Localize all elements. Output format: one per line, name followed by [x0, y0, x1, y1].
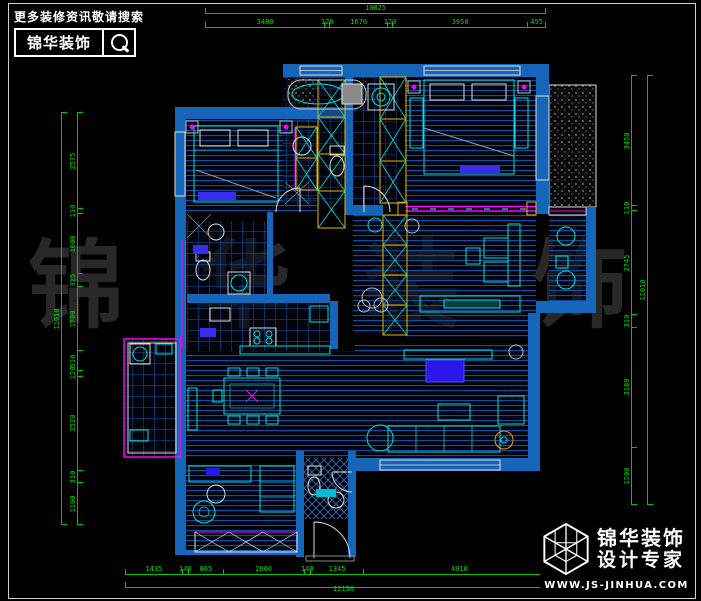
dim-segment: 3950: [392, 22, 527, 28]
dim-left-segments: 25751101600325170051012025203101100: [77, 112, 83, 525]
dim-tick: [545, 8, 546, 14]
dim-left-total: 11010: [61, 112, 67, 525]
dim-tick: [545, 22, 546, 28]
floorplan-drawing: [0, 0, 701, 601]
dim-segment: 325: [77, 273, 83, 286]
dim-segment: 1700: [77, 286, 83, 350]
dim-tick: [61, 524, 67, 525]
dim-segment: 3450: [631, 75, 637, 205]
dim-segment: 865: [188, 569, 223, 575]
dim-segment: 1100: [77, 482, 83, 524]
dim-segment: 495: [527, 22, 545, 28]
dim-segment: 4910: [363, 569, 554, 575]
dim-bottom-segments: 1435140865206014013454910140: [125, 568, 562, 575]
dim-segment: 2060: [223, 569, 304, 575]
dim-segment: 2575: [77, 112, 83, 208]
dim-segment: 1345: [310, 569, 363, 575]
dim-top-total: 10025: [205, 7, 546, 14]
brand-slogan: 更多装修资讯敬请搜索: [14, 8, 144, 25]
dim-segment: 310: [631, 314, 637, 327]
cad-sheet: 锦华装饰: [0, 0, 701, 601]
dim-segment: 310: [77, 470, 83, 482]
dim-segment: 10025: [205, 8, 545, 14]
dim-segment: 2520: [77, 376, 83, 470]
dim-segment: 1670: [329, 22, 387, 28]
dim-segment: 11010: [61, 112, 67, 524]
cube-logo-icon: [540, 521, 592, 577]
magnifier-icon: [111, 34, 128, 51]
dim-segment: 1435: [125, 569, 182, 575]
brand-tagline: 设计专家: [597, 550, 685, 571]
search-button[interactable]: [102, 30, 134, 55]
brand-name-bottom: 锦华装饰: [597, 527, 685, 549]
dim-segment: 3480: [205, 22, 324, 28]
dim-segment: 1500: [631, 447, 637, 504]
dim-tick: [647, 504, 653, 505]
dim-segment: 510: [77, 350, 83, 370]
dim-segment: 2745: [631, 210, 637, 314]
dim-segment: 11010: [647, 75, 653, 504]
brand-url[interactable]: WWW.JS-JINHUA.COM: [540, 580, 693, 591]
dim-tick: [77, 524, 83, 525]
brand-search-box[interactable]: 锦华装饰: [14, 28, 136, 57]
dim-segment: 12150: [125, 582, 561, 588]
dim-segment: 1600: [77, 213, 83, 273]
dim-right-segments: 3450110274531031801500: [631, 75, 637, 505]
dim-segment: 3180: [631, 327, 637, 447]
brand-top-block: 更多装修资讯敬请搜索 锦华装饰: [12, 6, 146, 61]
brand-name: 锦华装饰: [16, 30, 102, 55]
dim-tick: [631, 504, 637, 505]
dim-top-segments: 348012016701203950495: [205, 21, 546, 28]
dim-right-total: 11010: [647, 75, 653, 505]
brand-bottom-block: 锦华装饰 设计专家 WWW.JS-JINHUA.COM: [540, 519, 693, 594]
dim-bottom-total: 12150: [125, 581, 562, 588]
